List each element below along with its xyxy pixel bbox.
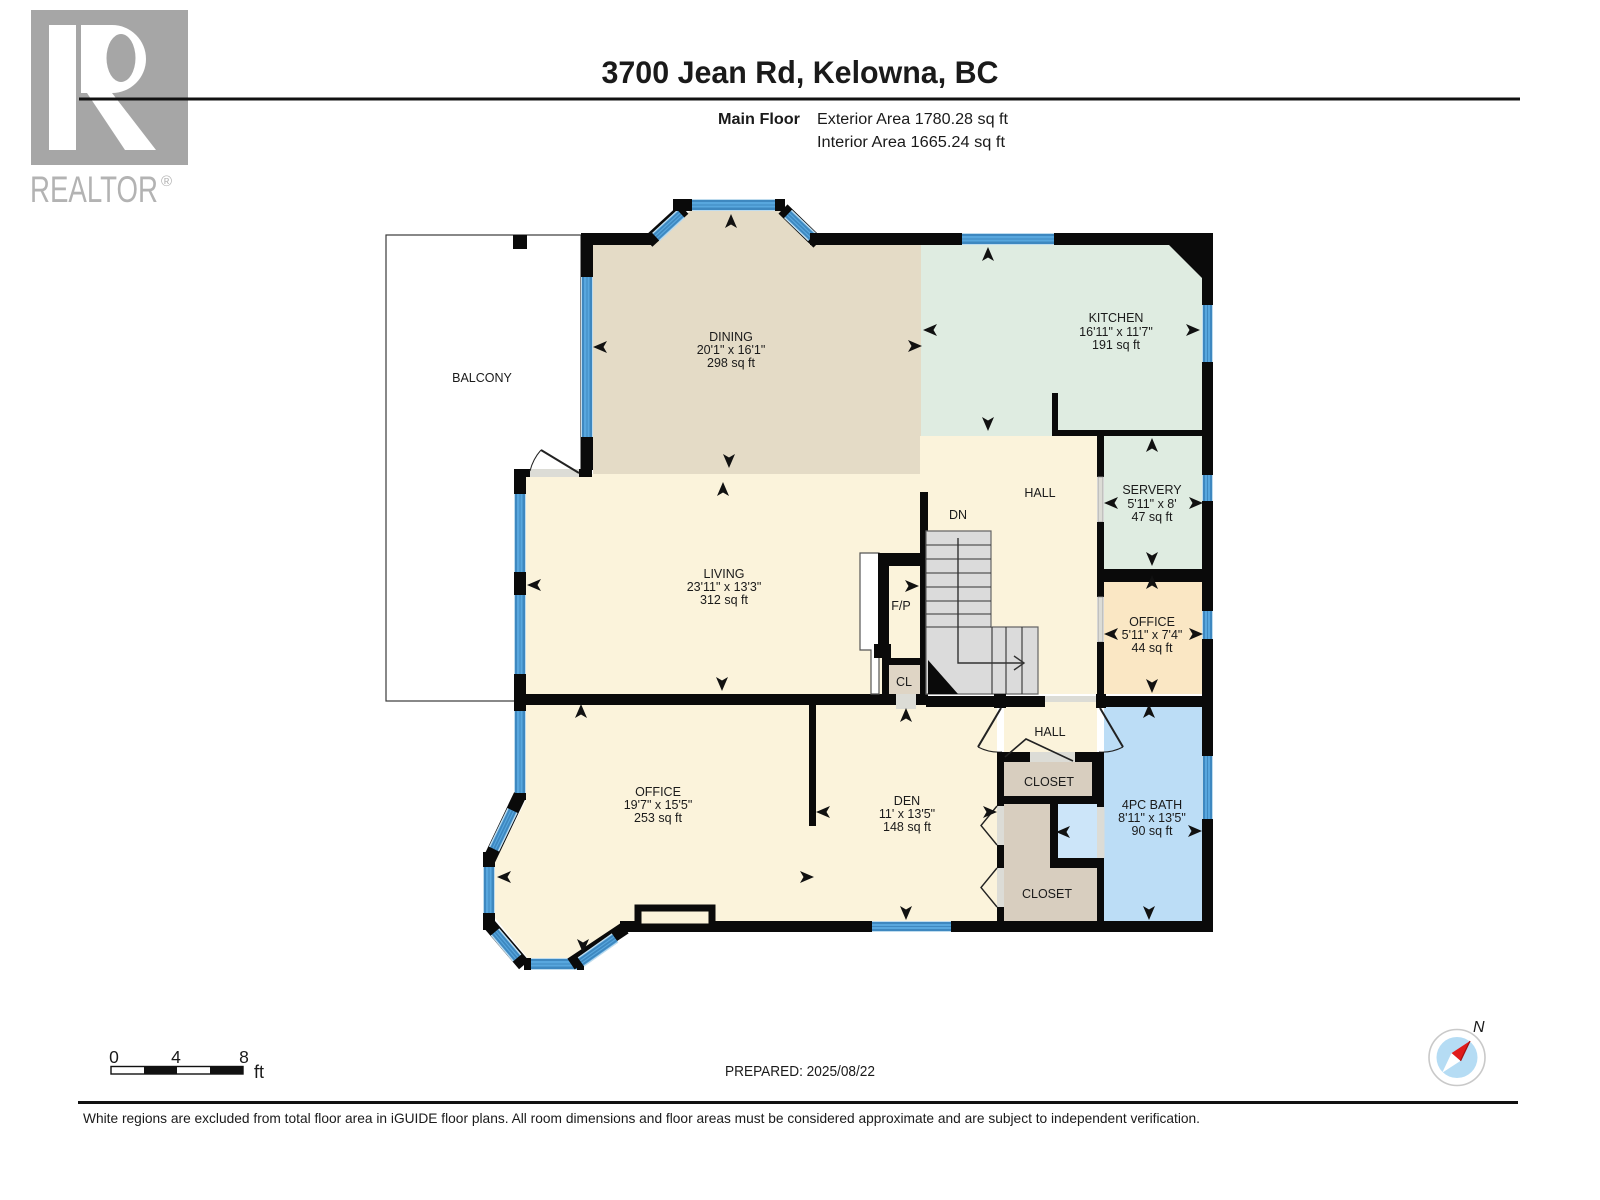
svg-text:47 sq ft: 47 sq ft bbox=[1132, 510, 1174, 524]
svg-text:11' x 13'5": 11' x 13'5" bbox=[879, 807, 935, 821]
svg-text:5'11" x 8': 5'11" x 8' bbox=[1127, 497, 1176, 511]
svg-text:F/P: F/P bbox=[891, 599, 910, 613]
svg-text:4: 4 bbox=[171, 1047, 181, 1067]
svg-text:90 sq ft: 90 sq ft bbox=[1132, 824, 1174, 838]
svg-text:HALL: HALL bbox=[1024, 486, 1055, 500]
svg-text:Main Floor: Main Floor bbox=[718, 111, 800, 128]
svg-text:19'7" x 15'5": 19'7" x 15'5" bbox=[624, 798, 693, 812]
svg-text:REALTOR: REALTOR bbox=[30, 169, 158, 210]
svg-text:OFFICE: OFFICE bbox=[635, 785, 681, 799]
svg-text:4PC BATH: 4PC BATH bbox=[1122, 798, 1182, 812]
svg-text:OFFICE: OFFICE bbox=[1129, 615, 1175, 629]
svg-text:298 sq ft: 298 sq ft bbox=[707, 356, 755, 370]
svg-text:Exterior Area 1780.28 sq ft: Exterior Area 1780.28 sq ft bbox=[817, 111, 1009, 128]
svg-text:44 sq ft: 44 sq ft bbox=[1132, 641, 1174, 655]
svg-text:CL: CL bbox=[896, 675, 912, 689]
svg-text:0: 0 bbox=[109, 1047, 119, 1067]
svg-text:DEN: DEN bbox=[894, 794, 920, 808]
svg-text:DINING: DINING bbox=[709, 330, 753, 344]
svg-text:23'11" x 13'3": 23'11" x 13'3" bbox=[687, 580, 762, 594]
svg-text:PREPARED: 2025/08/22: PREPARED: 2025/08/22 bbox=[725, 1063, 875, 1080]
svg-text:16'11" x 11'7": 16'11" x 11'7" bbox=[1079, 325, 1153, 339]
svg-text:312 sq ft: 312 sq ft bbox=[700, 593, 748, 607]
svg-text:LIVING: LIVING bbox=[704, 567, 745, 581]
svg-text:8: 8 bbox=[239, 1047, 249, 1067]
svg-text:148 sq ft: 148 sq ft bbox=[883, 820, 931, 834]
svg-text:ft: ft bbox=[254, 1062, 264, 1082]
svg-text:20'1" x 16'1": 20'1" x 16'1" bbox=[697, 343, 766, 357]
svg-text:White regions are excluded fro: White regions are excluded from total fl… bbox=[83, 1110, 1200, 1126]
svg-text:5'11" x 7'4": 5'11" x 7'4" bbox=[1122, 628, 1183, 642]
svg-text:BALCONY: BALCONY bbox=[452, 371, 512, 385]
svg-text:KITCHEN: KITCHEN bbox=[1089, 311, 1144, 325]
svg-text:Interior Area 1665.24 sq ft: Interior Area 1665.24 sq ft bbox=[817, 134, 1006, 151]
svg-text:253 sq ft: 253 sq ft bbox=[634, 811, 682, 825]
svg-text:CLOSET: CLOSET bbox=[1024, 775, 1074, 789]
svg-text:8'11" x 13'5": 8'11" x 13'5" bbox=[1118, 811, 1186, 825]
svg-text:SERVERY: SERVERY bbox=[1122, 483, 1182, 497]
svg-text:DN: DN bbox=[949, 508, 967, 522]
svg-text:HALL: HALL bbox=[1034, 725, 1065, 739]
svg-text:191 sq ft: 191 sq ft bbox=[1092, 338, 1140, 352]
svg-text:N: N bbox=[1473, 1019, 1485, 1036]
svg-text:®: ® bbox=[161, 173, 172, 190]
svg-text:3700 Jean Rd, Kelowna, BC: 3700 Jean Rd, Kelowna, BC bbox=[602, 54, 999, 90]
svg-text:CLOSET: CLOSET bbox=[1022, 887, 1072, 901]
